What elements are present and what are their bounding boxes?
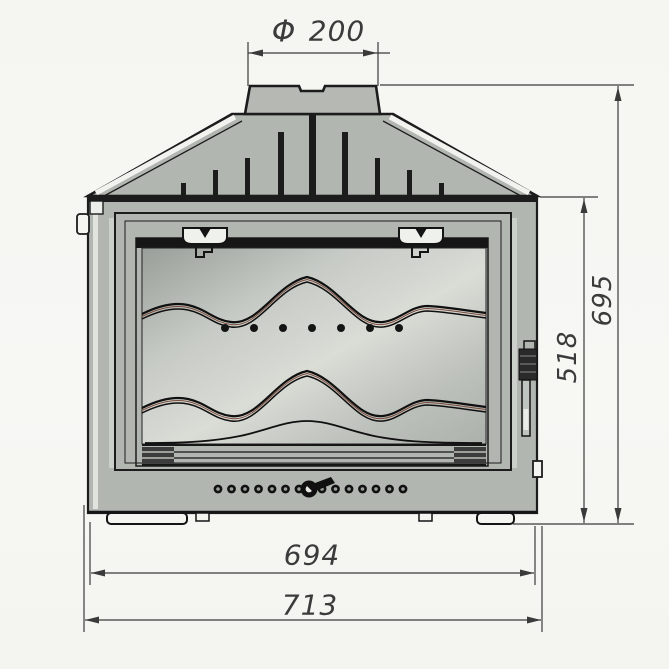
feet	[107, 513, 514, 524]
flue-collar	[245, 86, 380, 114]
overall-height-value: 695	[588, 274, 618, 327]
foot-tab-right	[419, 513, 432, 521]
right-edge-tab	[533, 461, 542, 477]
technical-drawing-page: Φ 200 695 518 694 713	[0, 0, 669, 669]
foot-tab-left	[196, 513, 209, 521]
flue-diameter-symbol: Φ	[272, 15, 297, 50]
glass-panel	[142, 248, 486, 444]
dim-flue-diameter	[248, 42, 390, 86]
overall-width-value: 713	[282, 589, 338, 622]
firebox-height-value: 518	[553, 331, 583, 384]
foot-right	[477, 513, 514, 524]
foot-left	[107, 513, 187, 524]
hood-center-divider	[309, 114, 316, 196]
corner-plate	[90, 201, 103, 214]
flue-diameter-value: 200	[309, 15, 365, 48]
inner-width-value: 694	[284, 539, 340, 572]
left-mounting-bracket	[77, 214, 89, 234]
